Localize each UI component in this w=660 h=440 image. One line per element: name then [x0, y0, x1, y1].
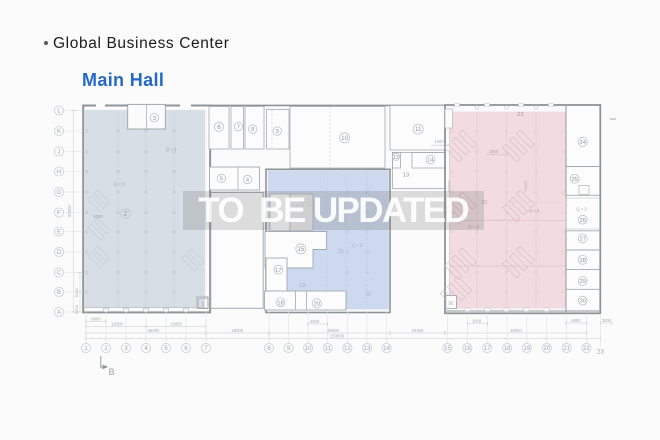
svg-text:15: 15	[444, 346, 451, 352]
svg-text:10: 10	[341, 135, 348, 142]
svg-text:17: 17	[484, 346, 491, 352]
svg-text:24: 24	[579, 140, 586, 146]
svg-text:18000: 18000	[231, 328, 243, 333]
svg-text:H: H	[57, 170, 61, 176]
svg-text:K: K	[57, 129, 61, 135]
svg-text:7: 7	[237, 125, 240, 131]
svg-text:6000: 6000	[91, 316, 101, 321]
svg-text:3000: 3000	[602, 318, 612, 323]
svg-text:Q = 3: Q = 3	[114, 181, 125, 186]
svg-text:16: 16	[464, 346, 471, 352]
svg-text:25: 25	[572, 177, 578, 183]
svg-text:9: 9	[276, 129, 279, 135]
svg-text:28: 28	[580, 258, 586, 264]
svg-text:D: D	[57, 250, 62, 256]
svg-text:45000: 45000	[510, 328, 522, 333]
svg-text:22: 22	[583, 346, 590, 352]
svg-text:6000: 6000	[74, 304, 79, 314]
svg-text:30: 30	[580, 299, 586, 305]
svg-text:15: 15	[297, 246, 304, 253]
svg-text:60000: 60000	[523, 180, 528, 192]
svg-text:21: 21	[338, 249, 344, 255]
svg-text:12: 12	[393, 155, 399, 161]
svg-text:20: 20	[543, 346, 550, 352]
svg-text:18000: 18000	[111, 321, 123, 326]
svg-text:60000: 60000	[67, 205, 72, 217]
svg-text:Q = 3: Q = 3	[528, 208, 539, 213]
svg-text:1000: 1000	[472, 318, 482, 323]
svg-text:11: 11	[325, 346, 332, 352]
svg-text:14: 14	[427, 158, 434, 164]
svg-text:11: 11	[415, 126, 422, 133]
svg-text:14: 14	[383, 346, 390, 352]
svg-text:2: 2	[124, 211, 128, 218]
svg-text:Q = 3: Q = 3	[352, 243, 363, 248]
svg-text:13: 13	[403, 172, 409, 178]
svg-text:26: 26	[580, 218, 586, 224]
svg-text:5: 5	[220, 177, 223, 183]
svg-text:6000: 6000	[74, 288, 79, 298]
svg-text:6000: 6000	[571, 318, 581, 323]
svg-text:2000: 2000	[310, 319, 320, 324]
svg-text:19: 19	[524, 346, 531, 352]
svg-text:E: E	[57, 230, 61, 236]
svg-text:19: 19	[299, 283, 305, 289]
svg-text:60000: 60000	[447, 180, 452, 192]
svg-text:F: F	[57, 211, 61, 217]
svg-text:13: 13	[364, 346, 371, 352]
svg-text:Q = 3: Q = 3	[576, 207, 587, 212]
svg-text:3: 3	[153, 116, 156, 122]
svg-text:1300: 1300	[434, 139, 444, 144]
svg-text:10: 10	[305, 346, 312, 352]
svg-text:2000: 2000	[93, 214, 103, 219]
svg-text:36000: 36000	[327, 328, 339, 333]
svg-text:6: 6	[217, 124, 221, 131]
svg-text:B: B	[109, 367, 115, 377]
svg-text:18400: 18400	[412, 328, 424, 333]
svg-text:B: B	[57, 290, 61, 296]
svg-text:12: 12	[344, 346, 351, 352]
svg-text:18: 18	[504, 346, 511, 352]
svg-text:C: C	[57, 271, 62, 277]
svg-text:21: 21	[563, 346, 570, 352]
svg-text:36000: 36000	[148, 328, 160, 333]
svg-text:23: 23	[517, 112, 523, 118]
svg-text:1900: 1900	[489, 149, 499, 154]
svg-text:153000: 153000	[330, 333, 345, 338]
svg-text:Q = 3: Q = 3	[166, 146, 177, 151]
svg-text:A: A	[57, 310, 61, 316]
svg-text:29: 29	[580, 279, 586, 285]
svg-text:27: 27	[580, 237, 586, 243]
svg-text:17: 17	[275, 268, 281, 274]
svg-text:23: 23	[597, 349, 604, 356]
svg-text:G: G	[57, 190, 62, 196]
svg-text:20: 20	[314, 302, 320, 308]
svg-text:J: J	[58, 150, 61, 156]
svg-text:32: 32	[448, 300, 454, 306]
svg-text:18: 18	[277, 300, 283, 306]
svg-text:22: 22	[365, 291, 371, 297]
svg-text:18000: 18000	[170, 321, 182, 326]
svg-text:8: 8	[251, 127, 254, 133]
